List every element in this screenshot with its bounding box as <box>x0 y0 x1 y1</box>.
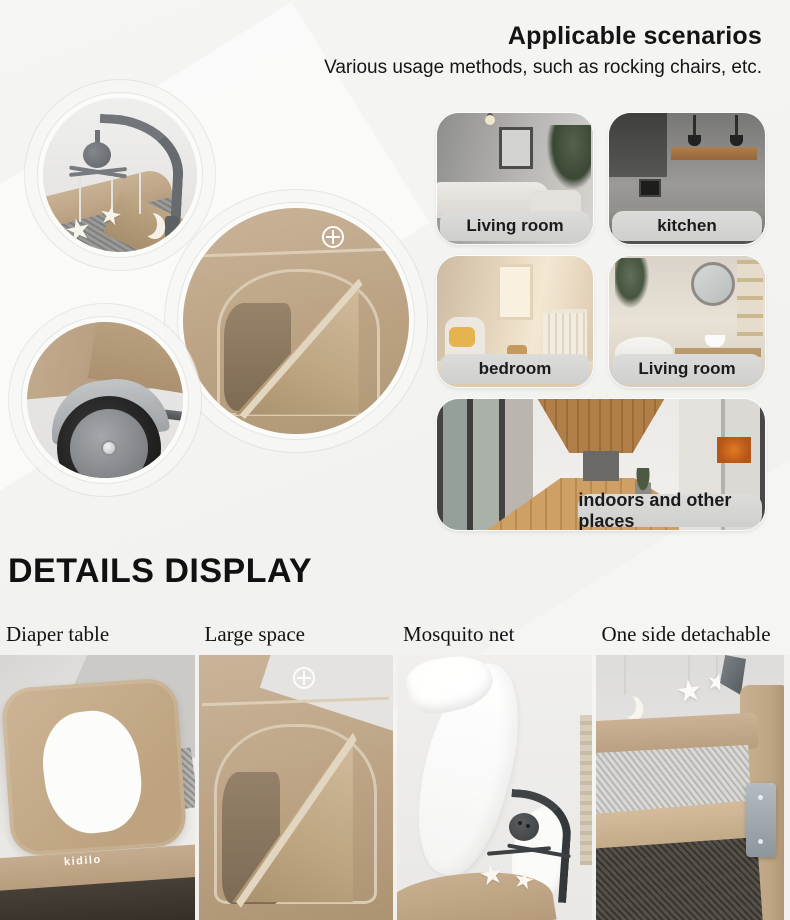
wall-art-shape <box>717 437 751 463</box>
pendant-lamp-shape <box>693 115 696 137</box>
cabinet-shape <box>609 113 667 177</box>
mosquito-net-photo: ★ ★ <box>397 655 592 920</box>
scenario-grid: Living room kitchen b <box>437 113 765 530</box>
scenario-label: kitchen <box>612 211 762 241</box>
music-box-icon <box>509 813 539 841</box>
details-row: Diaper table kidilo Large space <box>0 618 790 920</box>
baby-mobile-detail-photo: ★ ★ <box>38 93 202 257</box>
scenario-label: Living room <box>612 354 762 384</box>
section-subtitle: Various usage methods, such as rocking c… <box>324 57 762 79</box>
crib-fabric-shape <box>580 715 592 865</box>
detail-label: One side detachable <box>596 618 790 655</box>
pendant-lamp-shape <box>735 115 738 137</box>
star-toy-icon: ★ <box>97 200 124 230</box>
round-mirror-shape <box>691 262 735 306</box>
star-toy-icon: ★ <box>477 859 507 891</box>
metal-bracket-shape <box>746 783 776 857</box>
scenario-card-living-room-2: Living room <box>609 256 765 387</box>
toy-string-shape <box>139 170 141 214</box>
large-space-photo <box>199 655 394 920</box>
oven-shape <box>639 179 661 197</box>
background-strip-shape <box>784 655 790 920</box>
detail-column-diaper-table: Diaper table kidilo <box>0 618 195 920</box>
detail-label: Diaper table <box>0 618 195 655</box>
scenario-label: indoors and other places <box>578 494 762 527</box>
cushion-shape <box>449 327 475 347</box>
scenario-card-living-room: Living room <box>437 113 593 244</box>
brand-logo-icon <box>293 667 315 689</box>
wheel-hub-shape <box>101 440 117 456</box>
brand-logo-icon <box>322 226 344 248</box>
toy-string-shape <box>624 655 626 695</box>
plant-shape <box>547 125 591 189</box>
diaper-table-photo: kidilo <box>0 655 195 920</box>
scenario-card-bedroom: bedroom <box>437 256 593 387</box>
scenario-card-indoors: indoors and other places <box>437 399 765 530</box>
star-toy-icon: ★ <box>62 214 95 249</box>
music-box-icon <box>83 142 111 168</box>
detail-label: Large space <box>199 618 394 655</box>
scenario-card-kitchen: kitchen <box>609 113 765 244</box>
shelving-shape <box>737 260 763 340</box>
wood-ceiling-shape <box>513 399 689 453</box>
zipper-door-detail-photo <box>178 203 414 439</box>
dark-mesh-shape <box>596 837 763 920</box>
product-infographic: Applicable scenarios Various usage metho… <box>0 0 790 920</box>
caster-wheel-detail-photo <box>22 317 188 483</box>
basin-shape <box>705 335 725 347</box>
star-toy-icon: ★ <box>674 675 705 708</box>
wall-art-shape <box>499 127 533 169</box>
plant-shape <box>615 258 649 308</box>
detail-column-mosquito-net: Mosquito net ★ ★ <box>397 618 592 920</box>
detail-column-one-side-detachable: One side detachable ★ ★ <box>596 618 790 920</box>
detail-label: Mosquito net <box>397 618 592 655</box>
end-wall-shape <box>583 451 619 481</box>
detail-column-large-space: Large space <box>199 618 394 920</box>
window-shape <box>497 264 533 320</box>
wood-shelf-shape <box>671 147 757 160</box>
star-toy-icon: ★ <box>511 867 537 895</box>
section-title: Applicable scenarios <box>508 22 762 51</box>
mobile-clamp-shape <box>165 216 179 242</box>
scenario-label: Living room <box>440 211 590 241</box>
scenario-label: bedroom <box>440 354 590 384</box>
pendant-lamp-shape <box>485 115 495 125</box>
moon-toy-icon <box>613 691 639 720</box>
details-heading: DETAILS DISPLAY <box>8 552 312 591</box>
one-side-detachable-photo: ★ ★ <box>596 655 790 920</box>
